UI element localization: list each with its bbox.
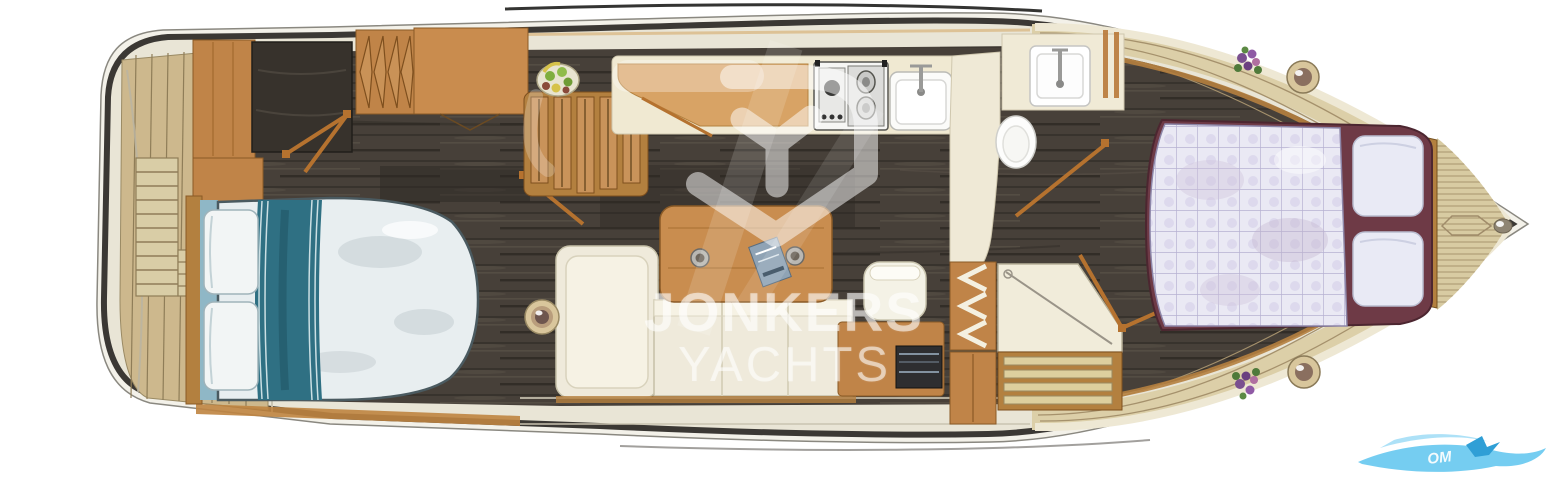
corner-watermark-text: OM [1426, 448, 1453, 468]
stool-seat [864, 262, 926, 320]
floorplan-drawing: OM [0, 0, 1560, 488]
forward-steps [998, 352, 1122, 410]
aft-cabinet-left [193, 40, 255, 158]
aft-cabin-bed [186, 196, 478, 404]
vanity-desk [252, 42, 352, 152]
head-sink [1030, 46, 1090, 106]
deck-ring-bottom [1288, 356, 1320, 388]
bow-ring [1494, 219, 1512, 233]
deck-ring-top [1287, 61, 1319, 93]
louvered-wardrobe [950, 262, 996, 424]
fruit-bowl [537, 64, 579, 96]
flower-pot-top [1234, 47, 1262, 75]
galley-sink [890, 66, 952, 130]
sideboard-tv [838, 322, 944, 396]
toilet [996, 116, 1036, 168]
porthole-fitting [525, 300, 559, 334]
yacht-floorplan-image: OM JONKERS YACHTS [0, 0, 1560, 488]
corner-swoosh-logo: OM [1358, 434, 1546, 472]
wardrobe-with-hangers [356, 30, 414, 114]
foredeck [1428, 138, 1516, 310]
forward-v-berth [1146, 120, 1432, 330]
